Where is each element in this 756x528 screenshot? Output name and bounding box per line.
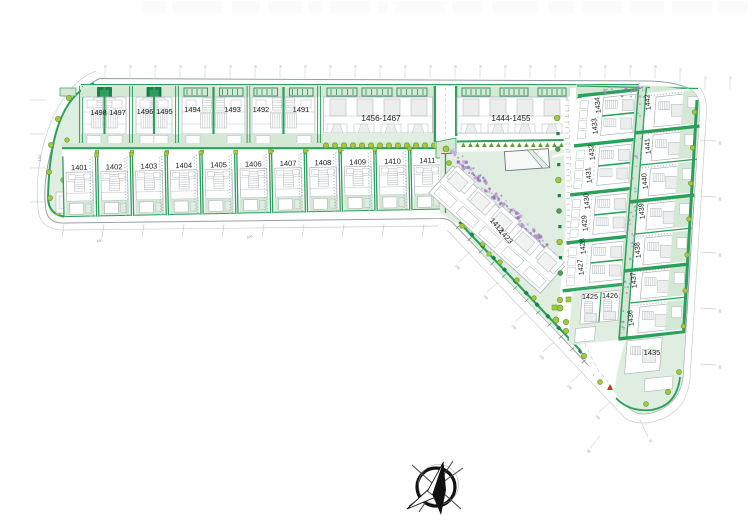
svg-text:50: 50 xyxy=(279,65,283,69)
svg-text:1456-1467: 1456-1467 xyxy=(361,114,401,123)
svg-text:1403: 1403 xyxy=(141,162,158,171)
svg-text:50: 50 xyxy=(554,65,558,69)
svg-text:1409: 1409 xyxy=(349,157,366,166)
svg-text:1401: 1401 xyxy=(71,163,88,172)
svg-text:50: 50 xyxy=(229,65,233,69)
svg-text:1407: 1407 xyxy=(280,159,297,168)
svg-text:100: 100 xyxy=(37,154,42,161)
svg-text:1404: 1404 xyxy=(175,161,192,170)
svg-text:50: 50 xyxy=(429,65,433,69)
svg-text:1437: 1437 xyxy=(628,272,639,289)
svg-text:1410: 1410 xyxy=(384,157,401,166)
svg-text:50: 50 xyxy=(529,65,533,69)
svg-text:50: 50 xyxy=(479,65,483,69)
svg-text:1436: 1436 xyxy=(625,310,636,327)
svg-text:1495: 1495 xyxy=(156,107,173,116)
svg-text:1405: 1405 xyxy=(210,160,227,169)
svg-text:50: 50 xyxy=(629,65,633,69)
svg-text:1439: 1439 xyxy=(636,203,647,220)
svg-text:50: 50 xyxy=(454,65,458,69)
svg-text:50: 50 xyxy=(654,65,658,69)
svg-text:50: 50 xyxy=(579,65,583,69)
svg-text:50: 50 xyxy=(329,65,333,69)
svg-text:50: 50 xyxy=(404,65,408,69)
svg-text:50: 50 xyxy=(129,65,133,69)
svg-text:1492: 1492 xyxy=(253,105,270,114)
svg-text:50: 50 xyxy=(254,65,258,69)
svg-text:50: 50 xyxy=(379,65,383,69)
svg-text:50: 50 xyxy=(179,65,183,69)
svg-text:1444-1455: 1444-1455 xyxy=(491,114,531,123)
svg-text:1428: 1428 xyxy=(577,238,588,255)
svg-text:50: 50 xyxy=(354,65,358,69)
svg-text:50: 50 xyxy=(104,65,108,69)
svg-text:50: 50 xyxy=(204,65,208,69)
svg-text:1435: 1435 xyxy=(644,348,661,357)
svg-text:50: 50 xyxy=(704,76,708,80)
svg-text:1402: 1402 xyxy=(106,162,123,171)
svg-text:1438: 1438 xyxy=(632,242,643,259)
svg-text:1429: 1429 xyxy=(579,215,590,232)
svg-text:1434: 1434 xyxy=(592,97,603,114)
svg-text:1430: 1430 xyxy=(581,193,592,210)
svg-text:1432: 1432 xyxy=(586,144,597,161)
svg-text:50: 50 xyxy=(679,68,683,72)
svg-text:1441: 1441 xyxy=(642,138,653,155)
svg-text:1433: 1433 xyxy=(589,118,600,135)
svg-text:1408: 1408 xyxy=(314,158,331,167)
svg-text:1406: 1406 xyxy=(245,159,262,168)
svg-text:1411: 1411 xyxy=(419,156,435,165)
svg-text:1427: 1427 xyxy=(575,259,586,276)
svg-text:50: 50 xyxy=(304,65,308,69)
svg-text:1440: 1440 xyxy=(639,173,650,190)
svg-text:50: 50 xyxy=(154,65,158,69)
svg-text:1494: 1494 xyxy=(184,105,201,114)
svg-text:1497: 1497 xyxy=(109,108,126,117)
svg-text:1491: 1491 xyxy=(293,105,310,114)
svg-text:1493: 1493 xyxy=(224,105,241,114)
svg-text:1425: 1425 xyxy=(582,292,598,301)
svg-text:50: 50 xyxy=(729,76,733,80)
svg-text:1431: 1431 xyxy=(583,167,594,184)
svg-text:50: 50 xyxy=(504,65,508,69)
svg-text:1426: 1426 xyxy=(602,291,618,300)
svg-text:50: 50 xyxy=(604,65,608,69)
svg-text:1498: 1498 xyxy=(90,108,107,117)
svg-text:1496: 1496 xyxy=(137,107,154,116)
